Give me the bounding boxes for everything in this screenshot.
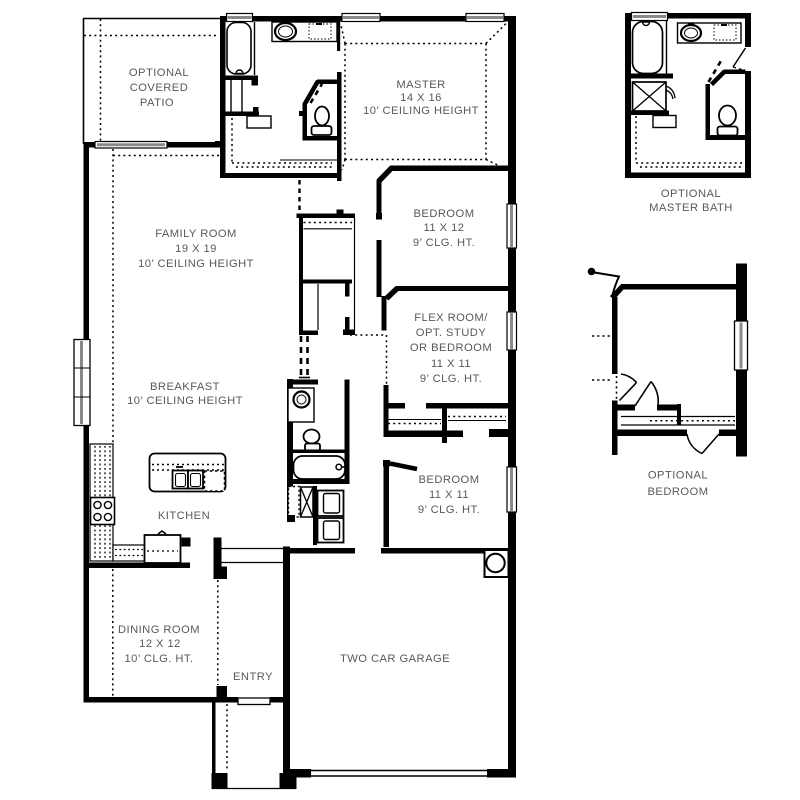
svg-text:BREAKFAST: BREAKFAST <box>150 381 220 393</box>
svg-text:OPT. STUDY: OPT. STUDY <box>416 327 486 339</box>
svg-text:12 X 12: 12 X 12 <box>139 638 181 650</box>
svg-text:14 X 16: 14 X 16 <box>400 92 442 104</box>
svg-text:9’ CLG. HT.: 9’ CLG. HT. <box>418 504 480 516</box>
svg-text:9’ CLG. HT.: 9’ CLG. HT. <box>420 373 482 385</box>
svg-text:10’ CEILING HEIGHT: 10’ CEILING HEIGHT <box>363 105 479 117</box>
svg-text:BEDROOM: BEDROOM <box>414 208 475 220</box>
svg-text:19 X 19: 19 X 19 <box>175 243 217 255</box>
svg-text:MASTER: MASTER <box>396 79 445 91</box>
svg-text:KITCHEN: KITCHEN <box>158 510 210 522</box>
svg-text:9’ CLG. HT.: 9’ CLG. HT. <box>413 237 475 249</box>
svg-text:BEDROOM: BEDROOM <box>648 486 709 498</box>
svg-text:11 X 12: 11 X 12 <box>424 222 465 234</box>
svg-text:10’ CEILING HEIGHT: 10’ CEILING HEIGHT <box>127 395 243 407</box>
svg-text:PATIO: PATIO <box>140 97 174 109</box>
svg-text:BEDROOM: BEDROOM <box>419 474 480 486</box>
svg-text:11 X 11: 11 X 11 <box>431 358 471 370</box>
svg-text:COVERED: COVERED <box>130 82 188 94</box>
svg-text:11 X 11: 11 X 11 <box>429 489 469 501</box>
svg-text:OPTIONAL: OPTIONAL <box>129 67 189 79</box>
svg-text:OR BEDROOM: OR BEDROOM <box>410 342 492 354</box>
svg-text:MASTER BATH: MASTER BATH <box>649 202 733 214</box>
svg-text:FAMILY ROOM: FAMILY ROOM <box>155 228 237 240</box>
svg-text:10’ CLG. HT.: 10’ CLG. HT. <box>124 653 193 665</box>
svg-text:ENTRY: ENTRY <box>233 671 273 683</box>
svg-text:10’ CEILING HEIGHT: 10’ CEILING HEIGHT <box>138 258 254 270</box>
svg-text:OPTIONAL: OPTIONAL <box>648 470 708 482</box>
svg-text:DINING ROOM: DINING ROOM <box>118 624 200 636</box>
svg-text:OPTIONAL: OPTIONAL <box>661 188 721 200</box>
svg-text:TWO CAR GARAGE: TWO CAR GARAGE <box>340 653 450 665</box>
svg-text:FLEX ROOM/: FLEX ROOM/ <box>414 312 488 324</box>
